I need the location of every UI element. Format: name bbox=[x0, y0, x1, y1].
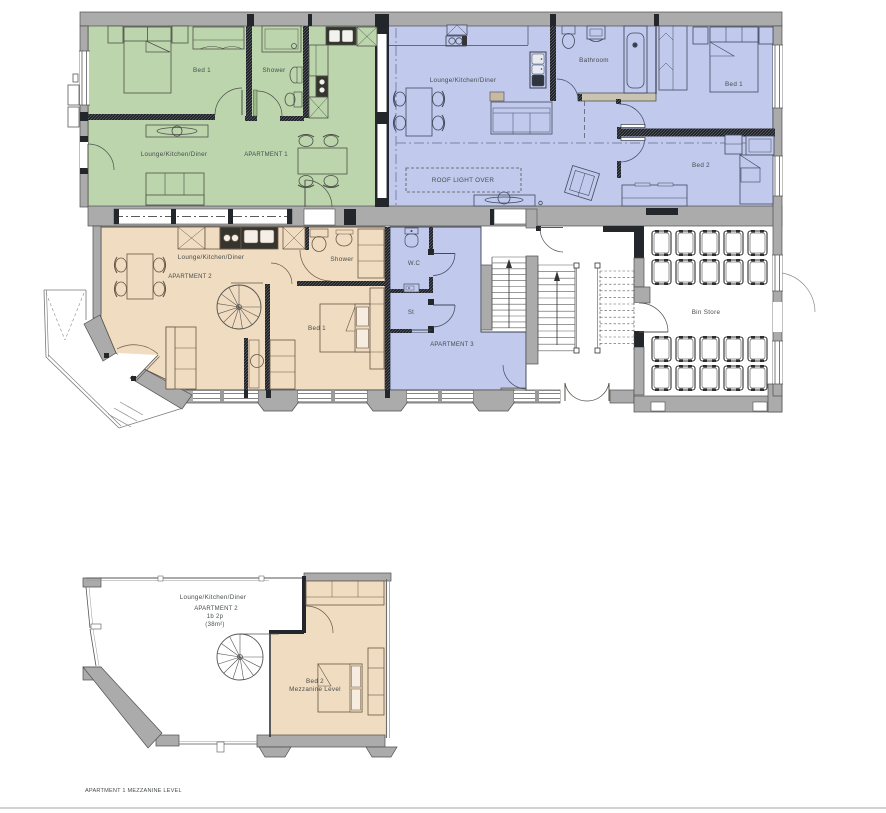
svg-text:Bed 1: Bed 1 bbox=[308, 325, 326, 332]
svg-text:Lounge/Kitchen/Diner: Lounge/Kitchen/Diner bbox=[180, 594, 247, 601]
svg-text:Bed 2: Bed 2 bbox=[306, 678, 324, 685]
svg-text:Shower: Shower bbox=[330, 256, 353, 263]
svg-text:Lounge/Kitchen/Diner: Lounge/Kitchen/Diner bbox=[178, 254, 245, 261]
svg-text:Lounge/Kitchen/Diner: Lounge/Kitchen/Diner bbox=[430, 77, 497, 84]
svg-text:Bin Store: Bin Store bbox=[692, 309, 721, 316]
svg-text:Shower: Shower bbox=[262, 67, 285, 74]
svg-text:Bathroom: Bathroom bbox=[579, 57, 609, 64]
svg-text:(38m²): (38m²) bbox=[205, 622, 224, 628]
svg-text:Lounge/Kitchen/Diner: Lounge/Kitchen/Diner bbox=[141, 151, 208, 158]
svg-text:Bed 1: Bed 1 bbox=[725, 81, 743, 88]
svg-text:W.C: W.C bbox=[408, 261, 421, 267]
svg-text:APARTMENT 3: APARTMENT 3 bbox=[430, 342, 474, 348]
svg-text:APARTMENT 1 MEZZANINE LEVEL: APARTMENT 1 MEZZANINE LEVEL bbox=[85, 788, 182, 794]
svg-text:APARTMENT 2: APARTMENT 2 bbox=[194, 606, 238, 612]
svg-text:APARTMENT 1: APARTMENT 1 bbox=[244, 152, 288, 158]
svg-text:ROOF LIGHT OVER: ROOF LIGHT OVER bbox=[432, 177, 495, 184]
svg-text:Bed 1: Bed 1 bbox=[193, 67, 211, 74]
svg-text:APARTMENT 2: APARTMENT 2 bbox=[168, 274, 212, 280]
svg-text:Bed 2: Bed 2 bbox=[692, 162, 710, 169]
svg-text:Mezzanine Level: Mezzanine Level bbox=[289, 686, 341, 693]
svg-text:St: St bbox=[408, 310, 414, 316]
svg-text:1b 2p: 1b 2p bbox=[207, 614, 224, 620]
